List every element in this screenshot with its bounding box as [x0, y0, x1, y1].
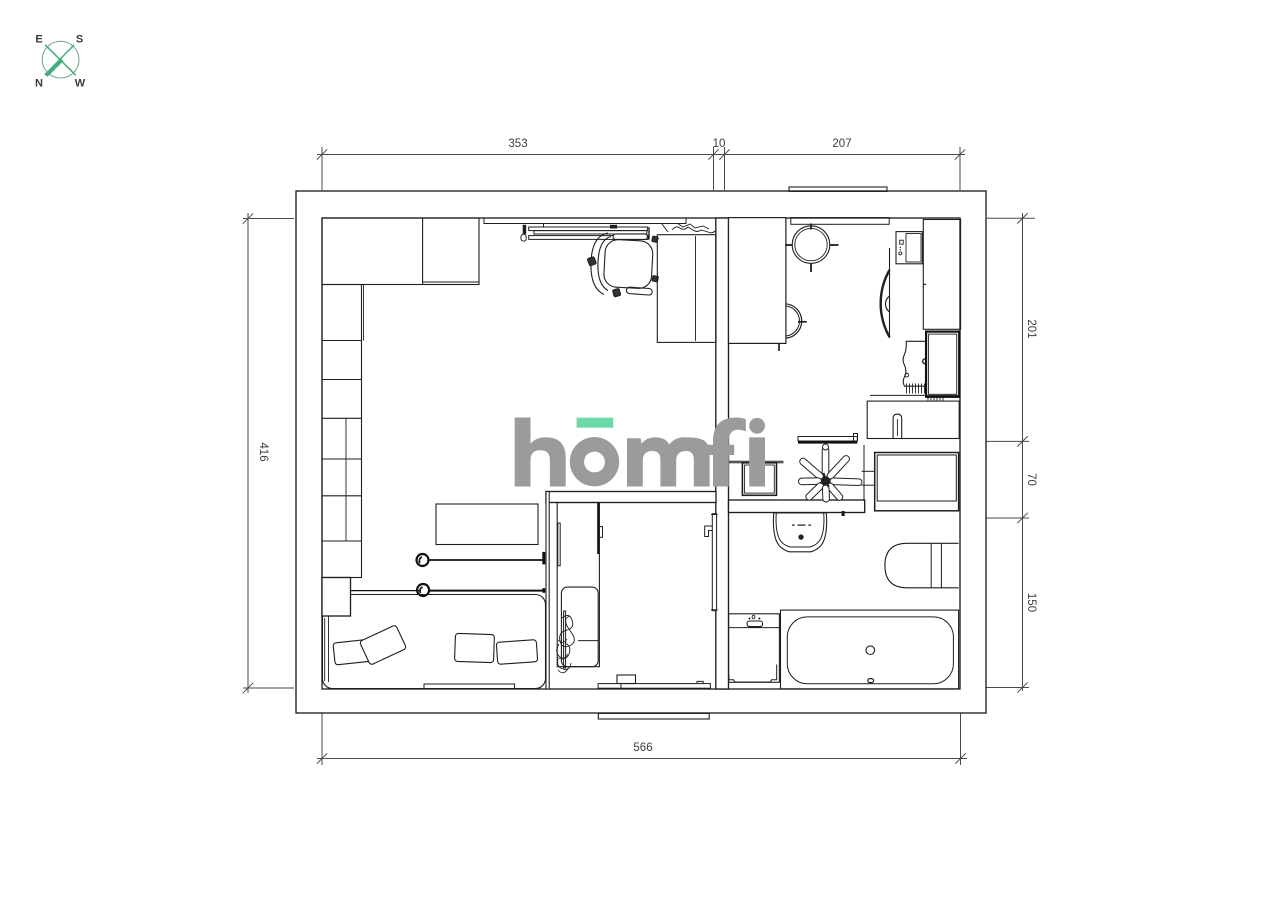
svg-text:S: S [76, 34, 83, 46]
svg-text:416: 416 [257, 442, 269, 461]
svg-text:10: 10 [713, 138, 726, 150]
svg-text:150: 150 [1025, 593, 1037, 612]
svg-text:201: 201 [1025, 319, 1037, 338]
svg-text:70: 70 [1025, 473, 1037, 486]
svg-text:566: 566 [633, 742, 652, 754]
svg-text:353: 353 [508, 138, 527, 150]
svg-text:207: 207 [832, 138, 851, 150]
svg-text:W: W [75, 78, 86, 90]
svg-text:E: E [35, 34, 42, 46]
svg-text:N: N [35, 78, 43, 90]
